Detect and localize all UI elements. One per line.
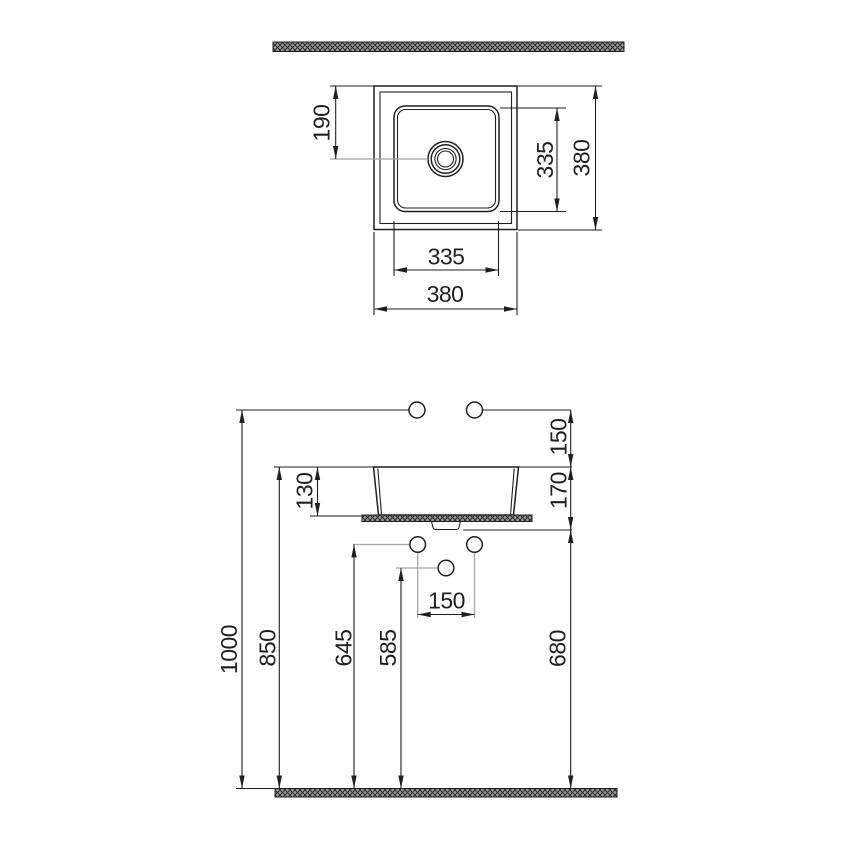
arrowhead xyxy=(398,776,403,789)
floor-section-strip xyxy=(275,789,617,798)
dim-label-335-v: 335 xyxy=(532,142,558,179)
arrowhead xyxy=(351,545,356,558)
arrowhead xyxy=(333,86,338,99)
dim-label-170: 170 xyxy=(545,472,571,509)
dim-label-190: 190 xyxy=(308,105,334,142)
arrowhead xyxy=(351,776,356,789)
elevation-view: 1000 850 130 645 585 xyxy=(216,402,617,797)
arrowhead xyxy=(333,146,338,159)
arrowhead xyxy=(593,217,598,230)
drain-stub xyxy=(432,522,461,530)
dim-label-150-bottom: 150 xyxy=(428,587,465,613)
arrowhead xyxy=(504,306,517,311)
arrowhead xyxy=(398,568,403,581)
dim-label-130: 130 xyxy=(291,473,317,510)
arrowhead xyxy=(374,306,387,311)
arrowhead xyxy=(593,86,598,99)
washbasin-technical-drawing: 190 335 380 335 xyxy=(0,0,848,857)
supply-connection-left-top xyxy=(409,402,425,418)
dim-label-380-v: 380 xyxy=(568,140,594,177)
drain-connection xyxy=(438,560,454,576)
washbasin-front xyxy=(374,467,519,515)
arrowhead xyxy=(239,776,244,789)
arrowhead xyxy=(239,410,244,423)
dim-rim-height: 850 xyxy=(254,467,282,789)
dim-label-680: 680 xyxy=(544,630,570,667)
dim-label-585: 585 xyxy=(375,630,401,667)
dim-label-150-right: 150 xyxy=(545,419,571,456)
dim-bowl-depth: 130 xyxy=(291,467,362,516)
dim-label-1000: 1000 xyxy=(216,625,242,674)
dim-connection-spacing: 150 xyxy=(418,587,475,617)
dim-drain-offset: 190 xyxy=(308,86,374,159)
dim-drain-connection-height: 585 xyxy=(375,568,404,789)
supply-connection-left-bottom xyxy=(410,537,426,553)
plan-view: 190 335 380 335 xyxy=(273,42,624,315)
arrowhead xyxy=(486,267,499,272)
dim-supply-above-rim: 150 xyxy=(545,410,573,467)
dim-counter-underside-height: 680 xyxy=(544,530,573,789)
wall-section-strip xyxy=(273,42,624,52)
arrowhead xyxy=(277,467,282,480)
arrowhead xyxy=(568,530,573,543)
arrowhead xyxy=(277,776,282,789)
dim-left-connection-height: 645 xyxy=(330,545,356,789)
dim-label-850: 850 xyxy=(254,630,280,667)
arrowhead xyxy=(394,267,407,272)
dim-rim-to-counter: 170 xyxy=(545,467,573,530)
supply-connection-right-top xyxy=(467,402,483,418)
arrowhead xyxy=(554,108,559,121)
drawing-canvas: 190 335 380 335 xyxy=(0,0,848,857)
countertop-section-strip xyxy=(362,515,532,522)
arrowhead xyxy=(568,517,573,530)
dim-supply-height: 1000 xyxy=(216,410,245,789)
arrowhead xyxy=(554,199,559,212)
dim-label-335-h: 335 xyxy=(428,243,465,269)
dim-label-380-h: 380 xyxy=(427,281,464,307)
supply-connection-right-bottom xyxy=(467,537,483,553)
arrowhead xyxy=(568,776,573,789)
dim-label-645: 645 xyxy=(330,630,356,667)
